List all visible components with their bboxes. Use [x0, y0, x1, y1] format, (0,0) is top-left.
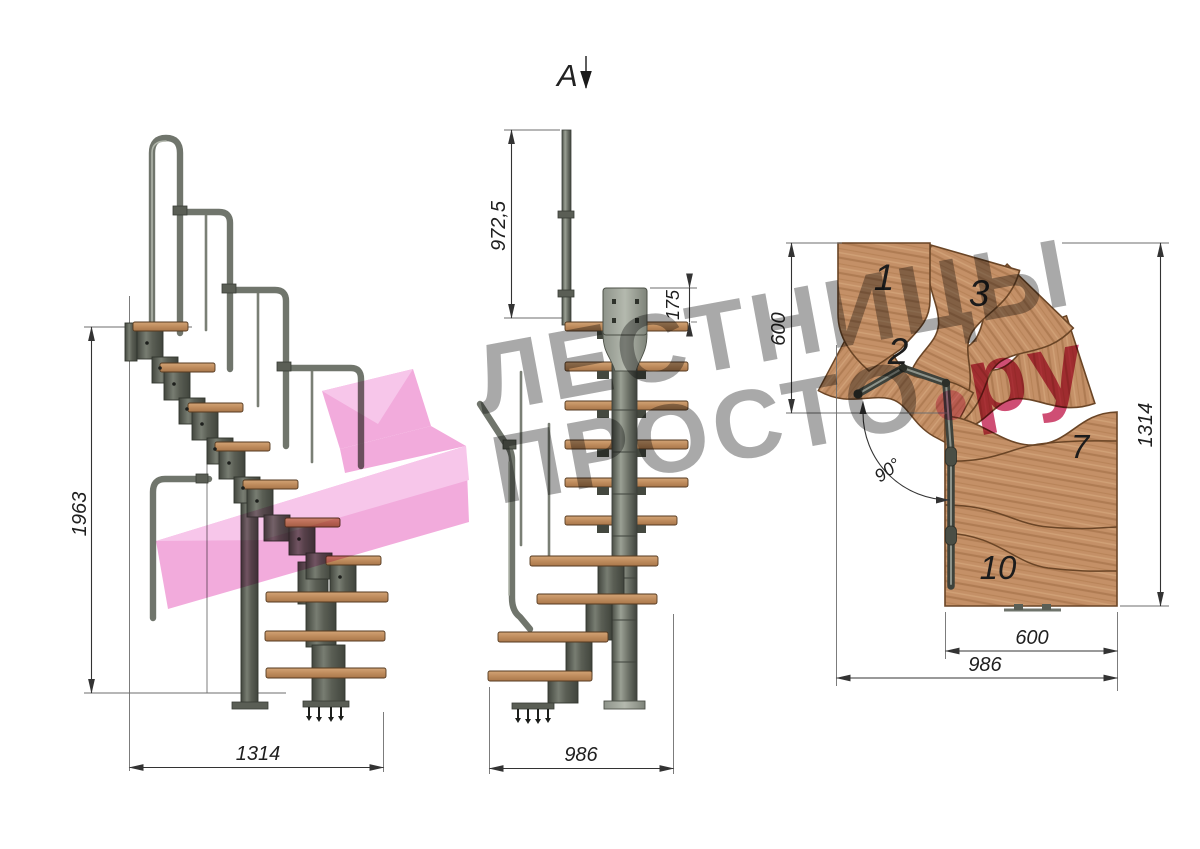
watermark-dot: .: [933, 388, 968, 423]
anchor-bolts: [515, 709, 551, 724]
side-height-dimension: 1963: [69, 327, 92, 693]
side-width-dimension: 1314: [130, 743, 384, 768]
dimension-label: 600: [1015, 627, 1048, 649]
plan-tread-width-dimension: 600: [946, 612, 1118, 691]
dimension-label: 1314: [236, 743, 281, 765]
column-base-plate: [604, 701, 645, 709]
step-label-10: 10: [980, 549, 1017, 586]
dimension-label: 1314: [1135, 403, 1157, 448]
dimension-label: 1963: [69, 492, 91, 537]
dimension-label: 972,5: [488, 200, 510, 251]
dimension-label: 986: [564, 744, 598, 766]
post-height-dimension: 972,5: [488, 130, 512, 318]
dimension-label: 986: [968, 654, 1002, 676]
section-marker: А: [555, 56, 586, 93]
step-label-7: 7: [1071, 428, 1091, 465]
section-label: А: [555, 58, 578, 93]
technical-drawing-page: 1963 1314 А 972,5: [0, 0, 1200, 849]
anchor-bolts: [306, 707, 344, 722]
side-elevation-view: 1963 1314: [69, 138, 388, 772]
watermark-domain: ру: [958, 308, 1098, 437]
